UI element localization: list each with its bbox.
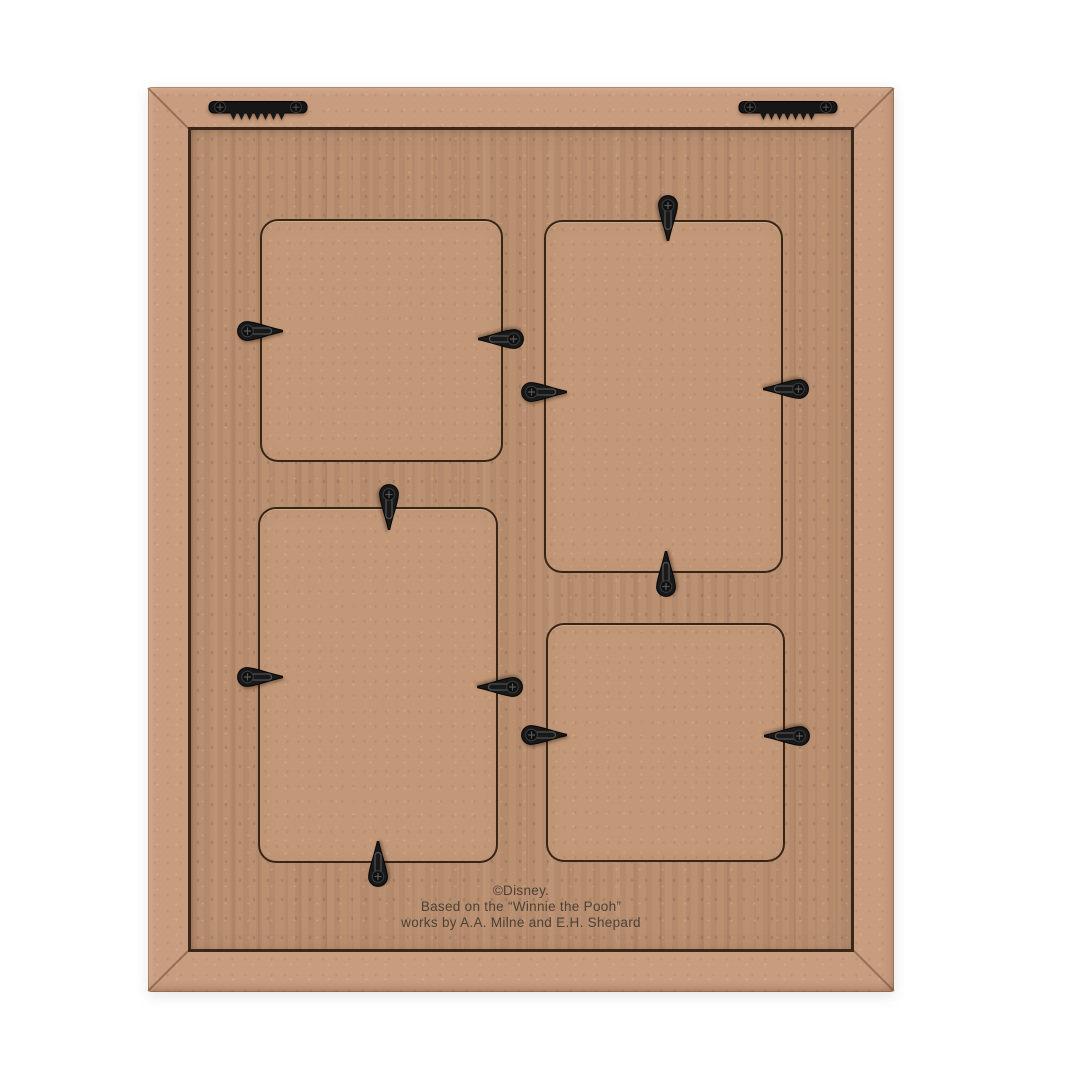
swivel-clip-icon (237, 321, 283, 341)
photo-opening-top-right (544, 220, 783, 573)
swivel-clip (237, 667, 283, 687)
attribution-line-2: works by A.A. Milne and E.H. Shepard (148, 915, 894, 931)
product-photo-backdrop: ©Disney. Based on the “Winnie the Pooh” … (0, 0, 1080, 1080)
swivel-clip-icon (379, 484, 399, 530)
miter-joint-line (853, 87, 895, 129)
backing-text: ©Disney. Based on the “Winnie the Pooh” … (148, 883, 894, 931)
sawtooth-hanger-icon (738, 98, 838, 125)
swivel-clip-icon (478, 329, 524, 349)
swivel-clip-icon (658, 195, 678, 241)
attribution-line-1: Based on the “Winnie the Pooh” (148, 899, 894, 915)
swivel-clip (477, 677, 523, 697)
sawtooth-hanger (738, 98, 838, 125)
copyright-line: ©Disney. (148, 883, 894, 899)
swivel-clip (521, 382, 567, 402)
swivel-clip (237, 321, 283, 341)
swivel-clip-icon (521, 725, 567, 745)
swivel-clip-icon (764, 726, 810, 746)
sawtooth-hanger-icon (208, 98, 308, 125)
swivel-clip (521, 725, 567, 745)
miter-joint-line (853, 950, 895, 992)
swivel-clip (658, 195, 678, 241)
miter-joint-line (147, 950, 189, 992)
swivel-clip-icon (237, 667, 283, 687)
photo-opening-bottom-right (546, 623, 785, 862)
swivel-clip (763, 379, 809, 399)
sawtooth-hanger (208, 98, 308, 125)
photo-opening-top-left (260, 219, 503, 462)
swivel-clip-icon (656, 551, 676, 597)
swivel-clip-icon (368, 841, 388, 887)
picture-frame-back: ©Disney. Based on the “Winnie the Pooh” … (148, 87, 894, 992)
photo-opening-bottom-left (258, 507, 498, 863)
swivel-clip (379, 484, 399, 530)
swivel-clip-icon (521, 382, 567, 402)
swivel-clip-icon (477, 677, 523, 697)
swivel-clip (656, 551, 676, 597)
swivel-clip (764, 726, 810, 746)
swivel-clip (478, 329, 524, 349)
miter-joint-line (147, 87, 189, 129)
swivel-clip-icon (763, 379, 809, 399)
swivel-clip (368, 841, 388, 887)
